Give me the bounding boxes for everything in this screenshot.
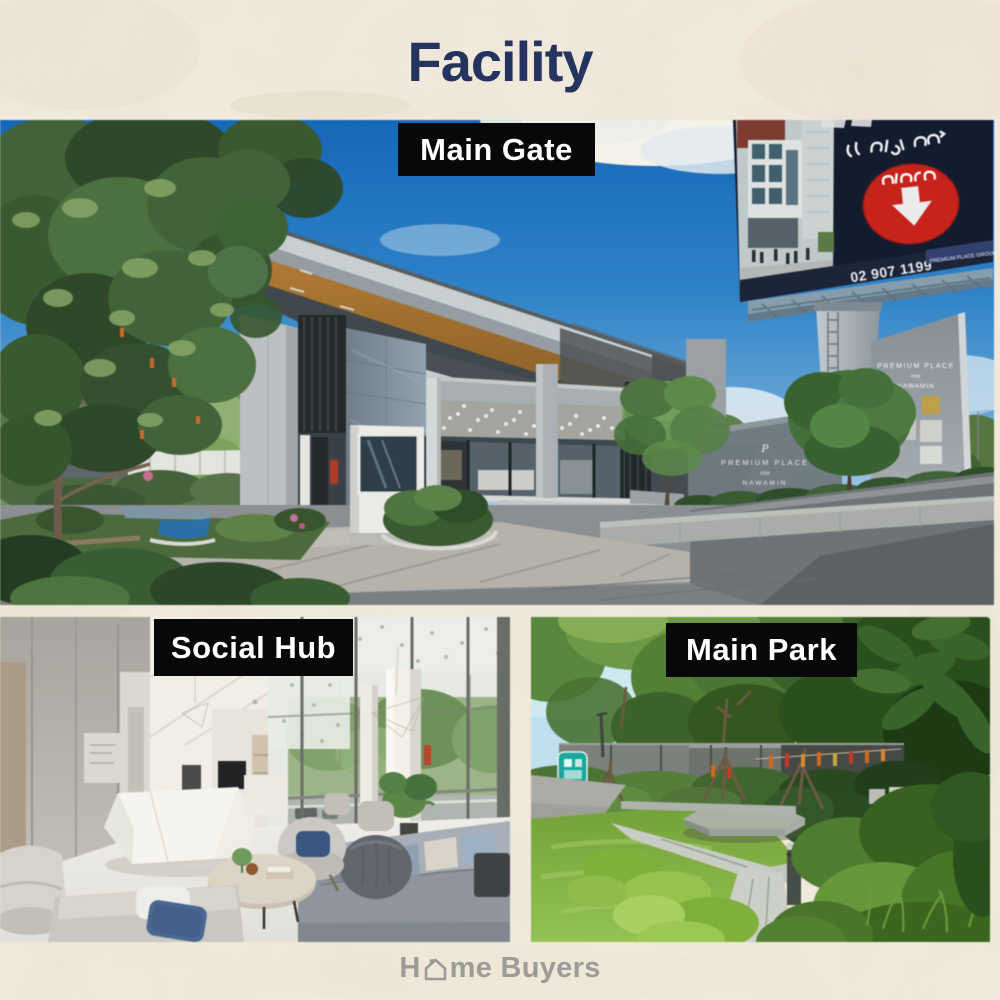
svg-text:P: P bbox=[760, 441, 769, 455]
svg-text:mix: mix bbox=[760, 471, 769, 477]
svg-text:mix: mix bbox=[911, 374, 920, 380]
svg-text:NAWAMIN: NAWAMIN bbox=[743, 480, 788, 487]
svg-text:PREMIUM PLACE: PREMIUM PLACE bbox=[877, 363, 954, 370]
svg-text:PREMIUM PLACE: PREMIUM PLACE bbox=[721, 458, 809, 467]
